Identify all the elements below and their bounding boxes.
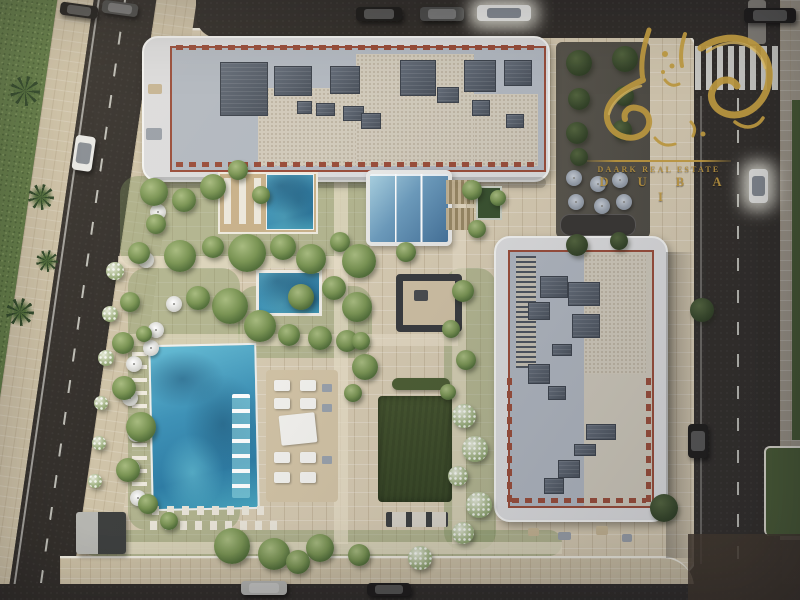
tree: [452, 280, 474, 302]
tree: [258, 538, 290, 570]
solar-panel: [437, 87, 459, 103]
bbq-counter: [386, 512, 448, 527]
umbrella: [143, 340, 159, 356]
solar-panel: [472, 100, 490, 116]
courtyard-furniture: [558, 532, 571, 540]
palm-tree: [6, 298, 34, 326]
right-green-strip: [792, 100, 800, 440]
car: [420, 7, 464, 21]
courtyard-furniture: [596, 526, 608, 535]
tree: [138, 494, 158, 514]
tree: [136, 326, 152, 342]
roof-trim-red: [512, 498, 646, 503]
deck-pad: [322, 384, 332, 392]
tree: [296, 244, 326, 274]
flowering-tree: [452, 404, 476, 428]
dirt-patch: [688, 534, 800, 600]
daybed: [274, 398, 290, 409]
tree: [212, 288, 248, 324]
tree: [288, 284, 314, 310]
solar-panel: [506, 114, 524, 128]
solar-panel: [330, 66, 360, 94]
tree: [306, 534, 334, 562]
palm-tree: [10, 76, 40, 106]
tree: [344, 384, 362, 402]
tree: [308, 326, 332, 350]
car: [744, 8, 796, 23]
daybed: [274, 380, 290, 391]
daybed: [274, 452, 290, 463]
tree: [214, 528, 250, 564]
tree: [186, 286, 210, 310]
tree: [120, 292, 140, 312]
roof-trim-red: [507, 378, 512, 502]
flowering-tree: [88, 474, 102, 488]
flowering-tree: [408, 546, 432, 570]
solar-panel: [528, 364, 550, 384]
daybed: [300, 380, 316, 391]
solar-panel: [361, 113, 381, 129]
daybed: [300, 398, 316, 409]
tree: [112, 376, 136, 400]
flowering-tree: [102, 306, 118, 322]
entry-canopy: [560, 214, 636, 236]
solar-panel: [220, 62, 268, 116]
courtyard-furniture: [622, 534, 632, 542]
car: [477, 5, 531, 21]
pool-pavilion: [76, 512, 126, 554]
tree: [442, 320, 460, 338]
tree: [352, 354, 378, 380]
glass-atrium-skylight: [366, 170, 452, 246]
street-tree: [690, 298, 714, 322]
solar-panel: [274, 66, 312, 96]
deck-furniture: [146, 128, 162, 140]
daybed: [300, 452, 316, 463]
solar-panel: [568, 282, 600, 306]
tree: [146, 214, 166, 234]
watermark-city-text: D U B A I: [581, 175, 743, 205]
tree: [456, 350, 476, 370]
tree: [286, 550, 310, 574]
tree: [160, 512, 178, 530]
solar-panel: [574, 444, 596, 456]
solar-panel: [558, 460, 580, 478]
tree: [342, 292, 372, 322]
roof-trim-red: [176, 45, 536, 50]
tree: [228, 160, 248, 180]
tree: [352, 332, 370, 350]
solar-panel: [544, 478, 564, 494]
watermark-brand-text: DAARK REAL ESTATE: [579, 165, 739, 174]
tree: [322, 276, 346, 300]
lawn: [378, 396, 452, 502]
car: [367, 583, 411, 596]
palm-tree: [36, 250, 58, 272]
deck-pad: [322, 404, 332, 412]
flowering-tree: [92, 436, 106, 450]
courtyard-furniture: [528, 528, 539, 536]
solar-panel: [316, 103, 335, 116]
solar-panel: [552, 344, 572, 356]
roof-gravel-patch: [258, 88, 364, 166]
solar-panel: [400, 60, 436, 96]
pool-tanning-shelf: [232, 394, 250, 498]
solar-panel: [464, 60, 496, 92]
tree: [126, 412, 156, 442]
tree: [650, 494, 678, 522]
daybed: [274, 472, 290, 483]
seating-pit-table: [414, 290, 428, 301]
car: [356, 7, 402, 21]
car: [688, 424, 708, 458]
palm-tree: [28, 184, 54, 210]
umbrella: [166, 296, 182, 312]
flowering-tree: [98, 350, 114, 366]
tree: [396, 242, 416, 262]
umbrella: [126, 356, 142, 372]
tree: [112, 332, 134, 354]
tree: [116, 458, 140, 482]
roof-trim-red: [646, 378, 651, 502]
flowering-tree: [94, 396, 108, 410]
car: [241, 581, 287, 595]
solar-panel: [548, 386, 566, 400]
tree: [348, 544, 370, 566]
watermark-logo: DAARK REAL ESTATE D U B A I: [585, 26, 790, 188]
tree: [342, 244, 376, 278]
tree: [610, 232, 628, 250]
lap-pool: [266, 174, 314, 230]
cabana: [279, 412, 318, 446]
tree: [164, 240, 196, 272]
flowering-tree: [452, 522, 474, 544]
flowering-tree: [462, 436, 488, 462]
tree: [566, 234, 588, 256]
flowering-tree: [106, 262, 124, 280]
solar-panel: [572, 314, 600, 338]
solar-panel: [528, 302, 550, 320]
tree: [490, 190, 506, 206]
tree: [244, 310, 276, 342]
solar-panel: [297, 101, 312, 114]
flowering-tree: [448, 466, 468, 486]
right-median-lawn: [764, 446, 800, 536]
tree: [440, 384, 456, 400]
flowering-tree: [466, 492, 492, 518]
tree: [468, 220, 486, 238]
solar-panel: [504, 60, 532, 86]
tree: [140, 178, 168, 206]
tree: [128, 242, 150, 264]
tree: [278, 324, 300, 346]
tree: [228, 234, 266, 272]
tree: [200, 174, 226, 200]
deck-pad: [322, 456, 332, 464]
aerial-site-render: DAARK REAL ESTATE D U B A I: [0, 0, 800, 600]
calligraphy-mark-icon: [585, 26, 790, 164]
tree: [462, 180, 482, 200]
solar-panel: [540, 276, 568, 298]
deck-furniture: [148, 84, 162, 94]
watermark-rule: [587, 160, 731, 162]
tree: [270, 234, 296, 260]
solar-panel: [586, 424, 616, 440]
daybed: [300, 472, 316, 483]
tree: [202, 236, 224, 258]
tree: [252, 186, 270, 204]
tree: [172, 188, 196, 212]
